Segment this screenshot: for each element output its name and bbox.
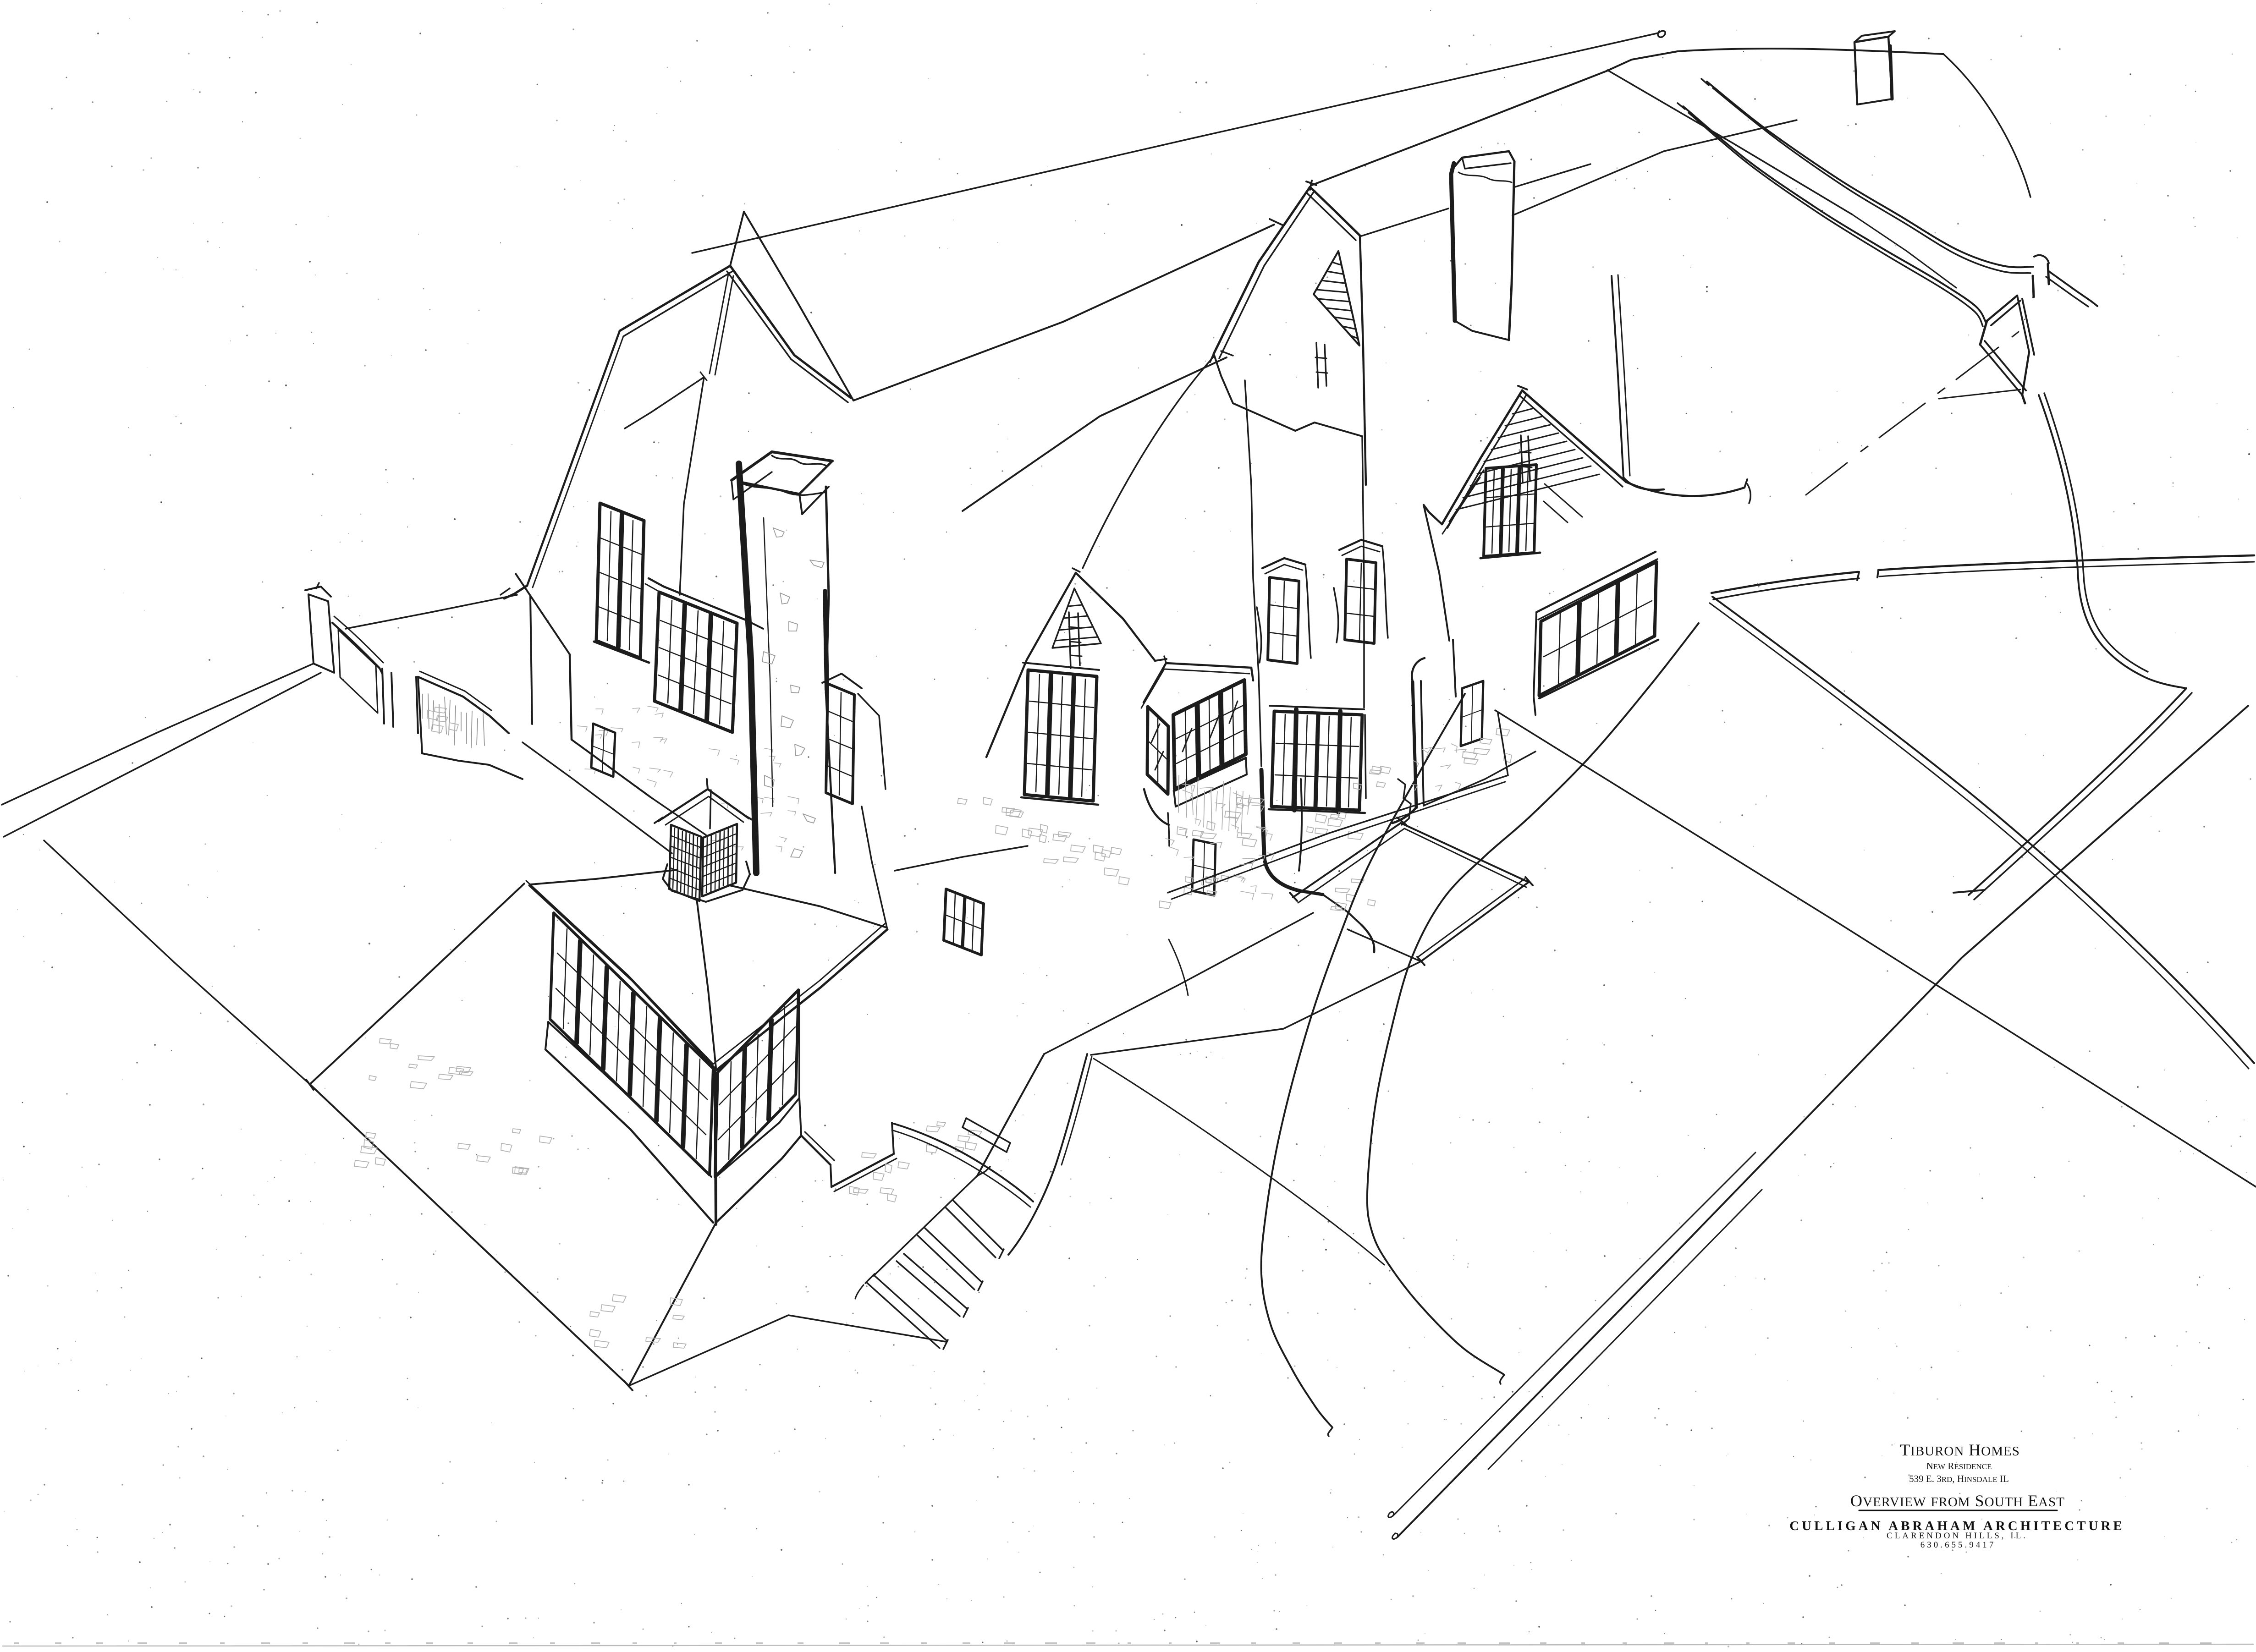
svg-text:CLARENDON HILLS, IL.: CLARENDON HILLS, IL. xyxy=(1887,1531,2028,1541)
svg-text:539 E. 3RD, HINSDALE IL: 539 E. 3RD, HINSDALE IL xyxy=(1909,1473,2009,1484)
svg-text:630.655.9417: 630.655.9417 xyxy=(1920,1540,1996,1550)
svg-text:NEW RESIDENCE: NEW RESIDENCE xyxy=(1926,1460,1992,1471)
